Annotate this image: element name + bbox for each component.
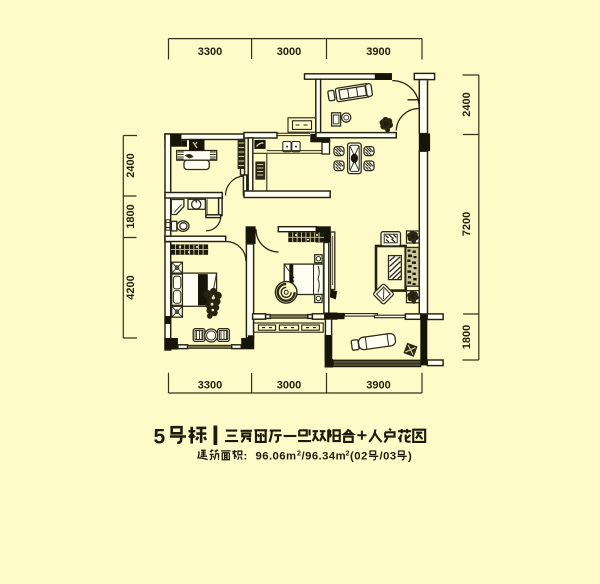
svg-text:(02: (02 [350, 451, 368, 463]
svg-text::: : [244, 451, 248, 463]
svg-text:7200: 7200 [461, 212, 473, 236]
svg-text:2400: 2400 [125, 153, 137, 177]
svg-text:3300: 3300 [198, 380, 222, 392]
svg-text:): ) [408, 451, 412, 463]
svg-text:3900: 3900 [366, 46, 390, 58]
svg-text:1800: 1800 [461, 325, 473, 349]
svg-text:3000: 3000 [277, 380, 301, 392]
svg-text:4200: 4200 [125, 275, 137, 299]
svg-text:3000: 3000 [277, 46, 301, 58]
svg-text:2: 2 [346, 450, 350, 457]
svg-text:5: 5 [154, 426, 166, 449]
svg-text:1800: 1800 [125, 204, 137, 228]
svg-text:2400: 2400 [461, 92, 473, 116]
svg-text:2: 2 [297, 450, 301, 457]
svg-text:3900: 3900 [366, 380, 390, 392]
svg-text:/96.34m: /96.34m [302, 451, 347, 463]
svg-text:/03: /03 [380, 451, 397, 463]
svg-text:3300: 3300 [198, 46, 222, 58]
svg-text:96.06m: 96.06m [256, 451, 297, 463]
